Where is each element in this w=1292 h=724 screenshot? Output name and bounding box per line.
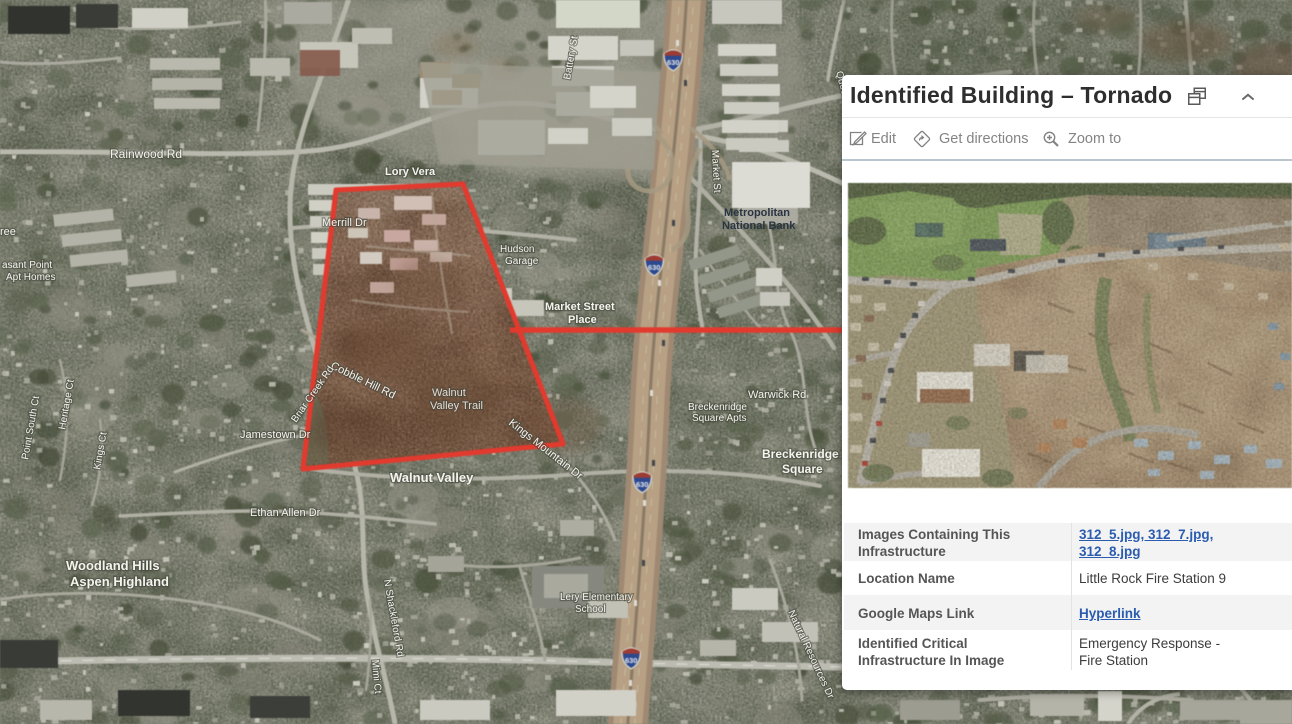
svg-text:Woodland Hills: Woodland Hills bbox=[66, 558, 160, 573]
svg-text:Merrill Dr: Merrill Dr bbox=[322, 217, 367, 229]
svg-text:Metropolitan: Metropolitan bbox=[724, 207, 790, 219]
svg-text:Square Apts: Square Apts bbox=[692, 413, 746, 424]
svg-text:asant Point: asant Point bbox=[2, 260, 52, 271]
svg-text:School: School bbox=[575, 604, 606, 615]
svg-text:Rainwood Rd: Rainwood Rd bbox=[110, 147, 182, 161]
svg-text:Briar Creek Rd: Briar Creek Rd bbox=[289, 364, 336, 424]
svg-text:Warwick Rd: Warwick Rd bbox=[748, 389, 806, 401]
svg-text:ree: ree bbox=[0, 226, 16, 238]
svg-text:Jamestown Dr: Jamestown Dr bbox=[240, 429, 311, 441]
svg-text:Walnut: Walnut bbox=[432, 387, 466, 399]
svg-text:Cobble Hill Rd: Cobble Hill Rd bbox=[329, 360, 397, 402]
svg-text:National Bank: National Bank bbox=[722, 220, 796, 232]
svg-text:Mimi Ct: Mimi Ct bbox=[369, 659, 383, 694]
svg-text:Kings Ct: Kings Ct bbox=[92, 431, 109, 470]
svg-text:Market Street: Market Street bbox=[545, 301, 615, 313]
svg-text:Breckenridge: Breckenridge bbox=[688, 402, 747, 413]
svg-text:Apt Homes: Apt Homes bbox=[6, 272, 55, 283]
svg-text:Lory Vera: Lory Vera bbox=[385, 166, 436, 178]
svg-text:Valley Trail: Valley Trail bbox=[430, 400, 483, 412]
svg-text:Hudson: Hudson bbox=[500, 244, 534, 255]
svg-text:Aspen Highland: Aspen Highland bbox=[70, 574, 169, 589]
svg-text:Breckenridge: Breckenridge bbox=[762, 447, 839, 461]
svg-text:Point South Ct: Point South Ct bbox=[20, 395, 42, 461]
svg-text:Heritage Ct: Heritage Ct bbox=[57, 379, 77, 431]
svg-text:Square: Square bbox=[782, 462, 823, 476]
svg-text:Kings Mountain Dr: Kings Mountain Dr bbox=[506, 417, 585, 482]
svg-text:Ethan Allen Dr: Ethan Allen Dr bbox=[250, 507, 321, 519]
svg-text:Garage: Garage bbox=[505, 256, 539, 267]
svg-text:Natural Resources Dr: Natural Resources Dr bbox=[785, 609, 836, 701]
svg-text:Lery Elementary: Lery Elementary bbox=[560, 592, 633, 603]
svg-text:N Shackleford Rd: N Shackleford Rd bbox=[381, 579, 405, 658]
svg-text:Battery St: Battery St bbox=[562, 35, 580, 80]
svg-text:Walnut Valley: Walnut Valley bbox=[390, 470, 474, 485]
svg-text:Place: Place bbox=[568, 314, 597, 326]
svg-text:Market St: Market St bbox=[709, 150, 722, 194]
